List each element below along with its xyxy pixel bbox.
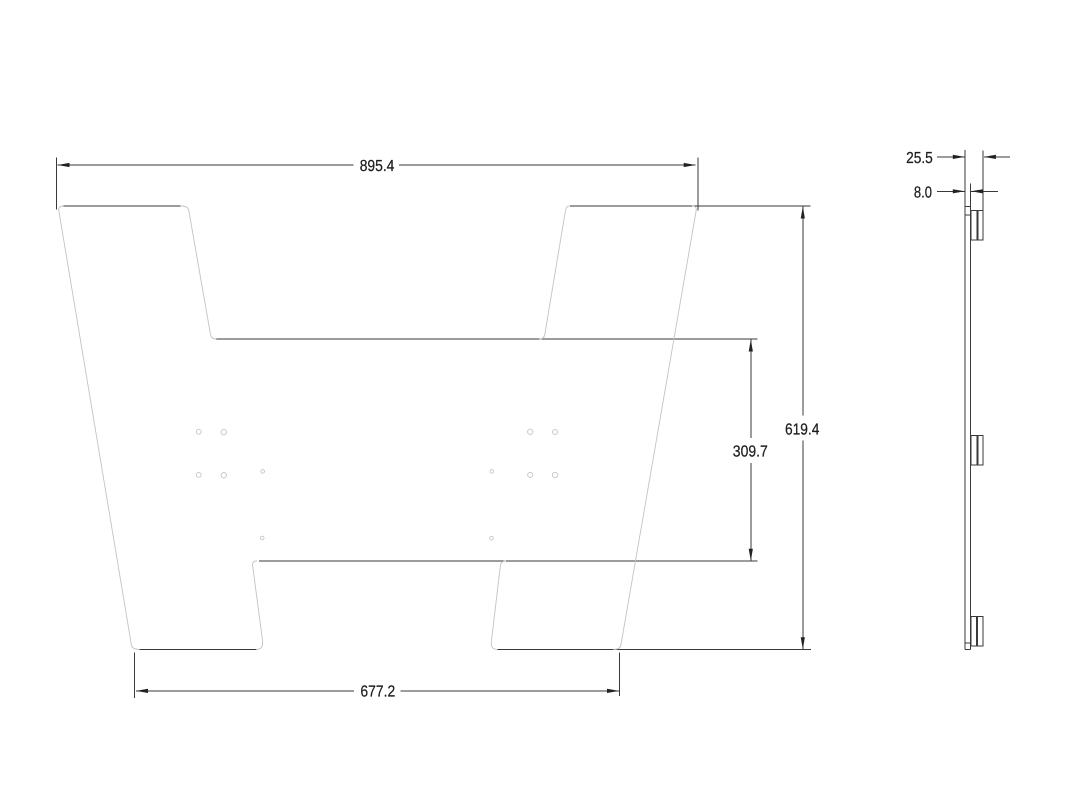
svg-text:309.7: 309.7: [733, 444, 768, 461]
svg-text:677.2: 677.2: [360, 684, 395, 701]
svg-text:619.4: 619.4: [785, 421, 819, 438]
svg-text:895.4: 895.4: [360, 158, 395, 175]
svg-text:8.0: 8.0: [914, 185, 932, 202]
svg-text:25.5: 25.5: [906, 150, 933, 167]
